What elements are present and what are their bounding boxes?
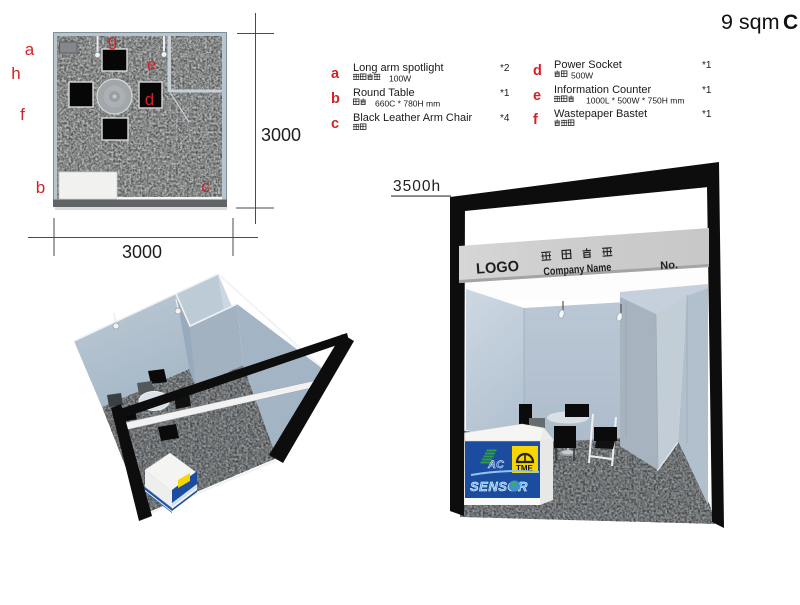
svg-text:660C * 780H mm: 660C * 780H mm [375,99,440,109]
svg-text:a: a [331,66,340,82]
svg-text:Long arm spotlight: Long arm spotlight [353,62,444,74]
svg-text:Round Table: Round Table [353,87,415,99]
svg-text:e: e [533,88,541,104]
svg-text:c: c [201,177,210,196]
svg-text:1000L * 500W * 750H mm: 1000L * 500W * 750H mm [586,96,684,106]
svg-text:c: c [331,116,339,132]
svg-text:*2: *2 [500,63,510,74]
svg-text:3500h: 3500h [393,178,441,195]
svg-text:Information Counter: Information Counter [554,84,652,96]
svg-text:*1: *1 [702,109,712,120]
svg-text:3000: 3000 [261,125,301,145]
svg-text:Power Socket: Power Socket [554,59,622,71]
svg-text:500W: 500W [571,71,593,81]
svg-text:a: a [25,40,35,59]
svg-text:No.: No. [660,259,679,272]
svg-text:100W: 100W [389,74,411,84]
svg-text:f: f [20,105,25,124]
svg-text:*1: *1 [500,88,510,99]
svg-text:d: d [533,63,542,79]
svg-text:LOGO: LOGO [476,258,520,278]
svg-text:3000: 3000 [122,242,162,262]
svg-text:b: b [36,178,45,197]
svg-text:Wastepaper Bastet: Wastepaper Bastet [554,108,647,120]
svg-text:f: f [533,112,538,128]
svg-text:*4: *4 [500,113,510,124]
svg-text:e: e [147,55,156,74]
svg-text:AC: AC [487,459,505,471]
svg-text:b: b [331,91,340,107]
svg-text:Black Leather Arm Chair: Black Leather Arm Chair [353,112,473,124]
svg-text:*1: *1 [702,60,712,71]
svg-text:h: h [11,64,20,83]
svg-text:*1: *1 [702,85,712,96]
svg-text:d: d [145,90,154,109]
svg-text:9 sqm: 9 sqm [721,10,780,34]
svg-text:g: g [108,31,117,50]
svg-text:C: C [783,11,798,34]
